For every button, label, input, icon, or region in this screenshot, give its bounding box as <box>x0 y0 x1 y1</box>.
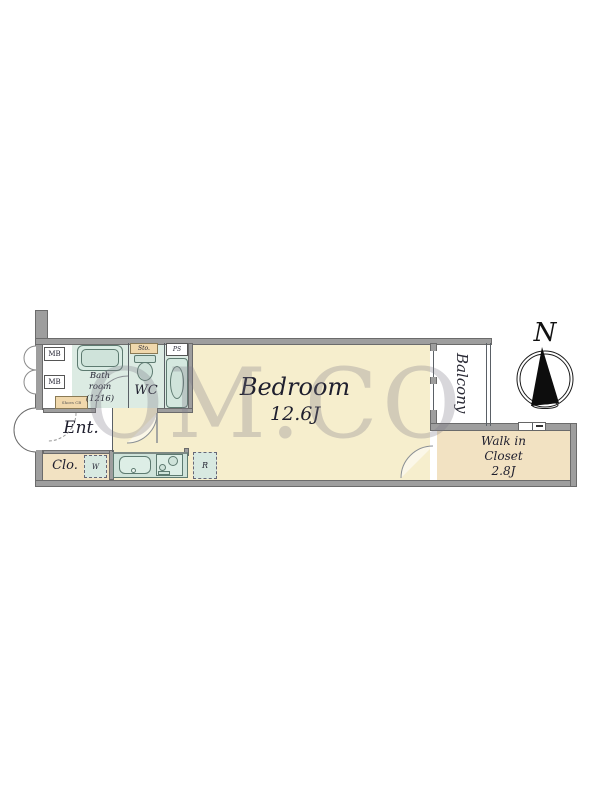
entrance-label: Ent. <box>52 419 110 439</box>
toilet-bowl <box>137 362 153 381</box>
bathroom-line3: (1216) <box>76 394 124 405</box>
wall-hall-top-b <box>157 408 193 413</box>
entrance-name: Ent. <box>63 418 99 438</box>
divider-wc-basin <box>164 343 165 408</box>
compass-needle-icon <box>531 347 559 406</box>
storage-label: Sto. <box>138 345 150 352</box>
bedroom-name: Bedroom <box>190 374 400 402</box>
meter-box-1-label: MB <box>48 350 60 358</box>
pipe-space-label: PS <box>173 346 181 353</box>
window-glass-line <box>433 384 434 410</box>
balcony-window-lower <box>430 384 437 410</box>
floor-plan-canvas: Sto. PS MB MB Shoes CB W R Bedroom 12.6J… <box>0 0 600 800</box>
wc-name: WC <box>134 383 157 398</box>
wic-vent-window <box>518 422 546 431</box>
compass: N <box>500 313 590 418</box>
wic-line1: Walk in <box>437 434 570 449</box>
balcony-window-upper <box>430 351 437 377</box>
wic-vent-mark <box>536 425 543 427</box>
closet-label: Clo. <box>46 459 84 474</box>
washer-label: W <box>92 463 99 471</box>
bathroom-line2: room <box>76 382 124 393</box>
entrance-door-gap <box>35 410 43 450</box>
compass-ring-inner <box>520 354 570 404</box>
divider-ent-hall <box>112 408 113 452</box>
closet-name: Clo. <box>52 458 78 473</box>
wall-top <box>35 338 492 345</box>
wash-basin-bowl <box>170 366 184 399</box>
kitchen-tap <box>131 468 136 473</box>
wall-wic-right <box>570 423 577 487</box>
balcony-railing-outer <box>490 343 491 426</box>
refrigerator-label: R <box>202 461 208 470</box>
bathroom-label: Bath room (1216) <box>76 371 124 405</box>
meter-box-2-label: MB <box>48 378 60 386</box>
bedroom-label: Bedroom 12.6J <box>190 374 400 425</box>
refrigerator-space: R <box>193 452 217 479</box>
compass-base-ellipse <box>532 402 558 409</box>
compass-ring-outer <box>517 351 573 407</box>
wc-label: WC <box>128 384 164 399</box>
washer-space: W <box>84 455 107 478</box>
bathtub-inner <box>81 349 119 367</box>
balcony-name: Balcony <box>453 353 471 413</box>
wall-bottom <box>35 480 577 487</box>
storage-box: Sto. <box>130 343 158 354</box>
wic-size: 2.8J <box>437 464 570 479</box>
meter-box-1: MB <box>44 347 65 361</box>
stove-burner-small <box>159 464 166 471</box>
wall-closet-top <box>43 450 113 454</box>
window-glass-line <box>433 351 434 377</box>
balcony-label-wrap: Balcony <box>437 345 487 421</box>
stove-burner-large <box>168 456 178 466</box>
meter-box-2: MB <box>44 375 65 389</box>
bedroom-size: 12.6J <box>190 404 400 426</box>
entrance-outer-door-arc <box>14 408 36 452</box>
stove-grill <box>158 471 170 475</box>
bathroom-line1: Bath <box>76 371 124 382</box>
walk-in-closet-label: Walk in Closet 2.8J <box>437 434 570 479</box>
wic-vent-divider <box>532 423 533 430</box>
wall-wic-top <box>430 423 577 431</box>
compass-north-label: N <box>533 318 558 348</box>
pipe-space-box: PS <box>166 343 188 356</box>
wic-line2: Closet <box>437 449 570 464</box>
